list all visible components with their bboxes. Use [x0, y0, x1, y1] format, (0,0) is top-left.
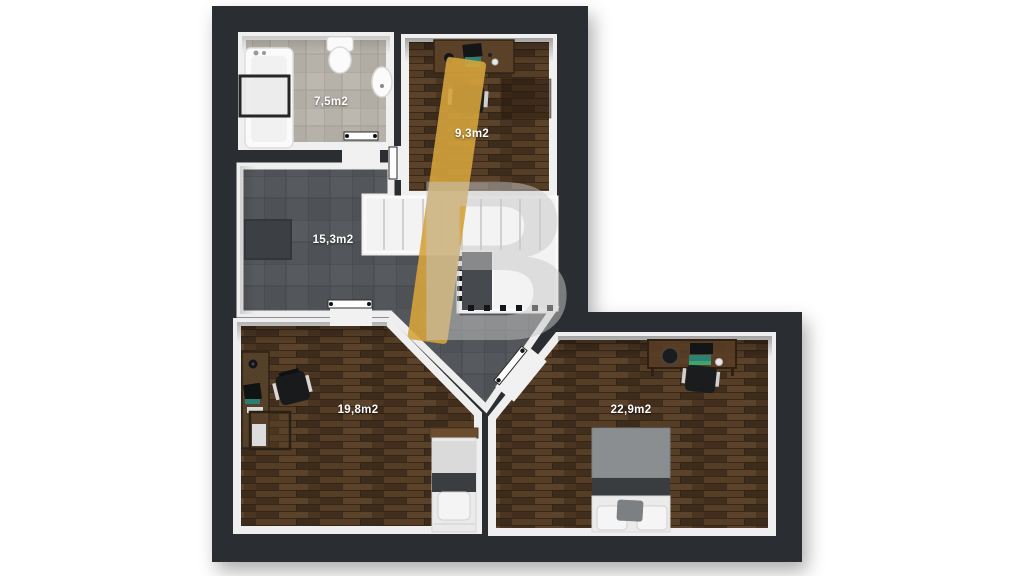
single-bed-dark-band: [432, 473, 476, 492]
bedroom-right-desk-item: [662, 348, 678, 364]
room-bathroom: [240, 36, 392, 148]
bedroom-left-door: [328, 300, 372, 326]
bedroom-right-laptop: [690, 343, 713, 354]
area-label-bedroom-right: 22,9m2: [611, 404, 652, 416]
double-bed-cushion: [616, 499, 643, 521]
double-bed-dark-band: [592, 478, 670, 496]
watermark-letter: B: [411, 132, 577, 389]
area-label-landing-hall: 15,3m2: [313, 234, 354, 246]
floor-plan-image: B 7,5m2 9,3m2 15,3m2 19,8m2 22,9m2: [0, 0, 1024, 576]
bedroom-left-side-table-item: [252, 424, 266, 446]
sink-drain: [380, 84, 384, 88]
double-bed-duvet: [592, 428, 670, 478]
hall-mat: [245, 220, 291, 259]
bedroom-right-desk-leg-2: [731, 368, 734, 376]
bedroom-right-notebook-green: [689, 361, 711, 365]
bedroom-left-laptop: [243, 383, 262, 401]
office-door: [388, 146, 408, 180]
single-bed: [430, 428, 478, 532]
office-rug: [502, 79, 551, 118]
single-bed-duvet: [432, 441, 476, 473]
bedroom-right-notebook-teal: [689, 355, 711, 361]
office-desk-item: [492, 59, 498, 65]
office-desk-item-2: [488, 53, 492, 57]
shower-glass-panel: [240, 76, 289, 116]
area-label-bedroom-left: 19,8m2: [338, 404, 379, 416]
sink: [372, 67, 392, 97]
bathtub-faucet-2: [262, 51, 266, 55]
bedroom-left-lamp-dot: [252, 363, 255, 366]
area-label-bathroom: 7,5m2: [314, 96, 348, 108]
bathtub-faucet: [254, 51, 259, 56]
bedroom-right-desk-leg: [651, 368, 654, 376]
floor-plan-svg: B 7,5m2 9,3m2 15,3m2 19,8m2 22,9m2: [0, 0, 1024, 576]
single-bed-pillow: [438, 492, 470, 520]
bathroom-door: [342, 132, 380, 168]
area-label-office: 9,3m2: [455, 128, 489, 140]
office-laptop: [462, 43, 482, 58]
double-bed: [592, 428, 670, 532]
toilet-bowl: [329, 47, 351, 73]
single-bed-headboard: [430, 428, 478, 438]
bedroom-left-notebook: [245, 399, 260, 404]
bedroom-right-desk-item-2: [716, 359, 723, 366]
